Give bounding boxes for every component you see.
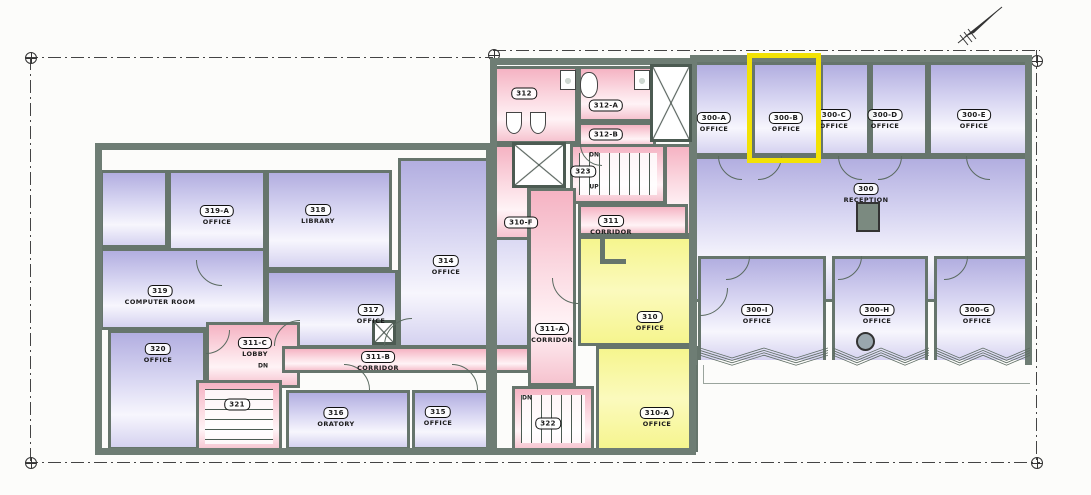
stair-treads [205,389,273,444]
room-316[interactable] [286,390,410,450]
boundary-line [1036,50,1037,462]
highlight-box [747,53,821,163]
survey-marker [1031,457,1043,469]
elevator-shaft-icon [512,142,566,188]
boundary-line [25,462,1040,463]
room-321[interactable] [196,380,282,453]
elevator-shaft-icon [650,64,692,142]
room-311-b[interactable] [282,346,530,373]
north-arrow-icon [950,3,1006,47]
urinal-icon [506,112,522,134]
terrace-line-icon [703,383,1030,384]
survey-marker [1031,55,1043,67]
wall-stub-icon [600,259,626,264]
toilet-icon [580,72,598,98]
room-318[interactable] [266,170,392,270]
survey-marker [25,52,37,64]
sink-icon [634,70,650,90]
room-300-c[interactable] [820,62,870,156]
bay-window-zigzag [936,344,1030,370]
room-unlabeled[interactable] [100,170,168,248]
stair-direction-label: DN [258,363,268,370]
room-300-d[interactable] [870,62,928,156]
bay-window-zigzag [833,344,929,370]
room-319[interactable] [100,248,266,330]
boundary-line [30,57,31,462]
stair-direction-label: DN [589,152,599,159]
room-300-e[interactable] [928,62,1028,156]
survey-marker [25,457,37,469]
room-300-a[interactable] [694,62,752,156]
stair-treads [521,395,585,443]
room-319-a[interactable] [168,170,266,260]
room-320[interactable] [108,330,206,450]
urinal-icon [530,112,546,134]
survey-marker [488,49,500,61]
room-311[interactable] [578,204,688,236]
room-315[interactable] [412,390,490,450]
room-310-a[interactable] [596,346,698,452]
bay-window-zigzag [700,344,828,370]
floor-plan: 300RECEPTION300-AOFFICE300-BOFFICE300-CO… [0,0,1091,495]
reception-desk-icon [856,202,880,232]
stair-direction-label: DN [522,395,532,402]
boundary-line [25,57,493,58]
boundary-line [493,50,1040,51]
stair-direction-label: UP [589,184,598,191]
room-310[interactable] [578,236,696,346]
sink-icon [560,70,576,90]
